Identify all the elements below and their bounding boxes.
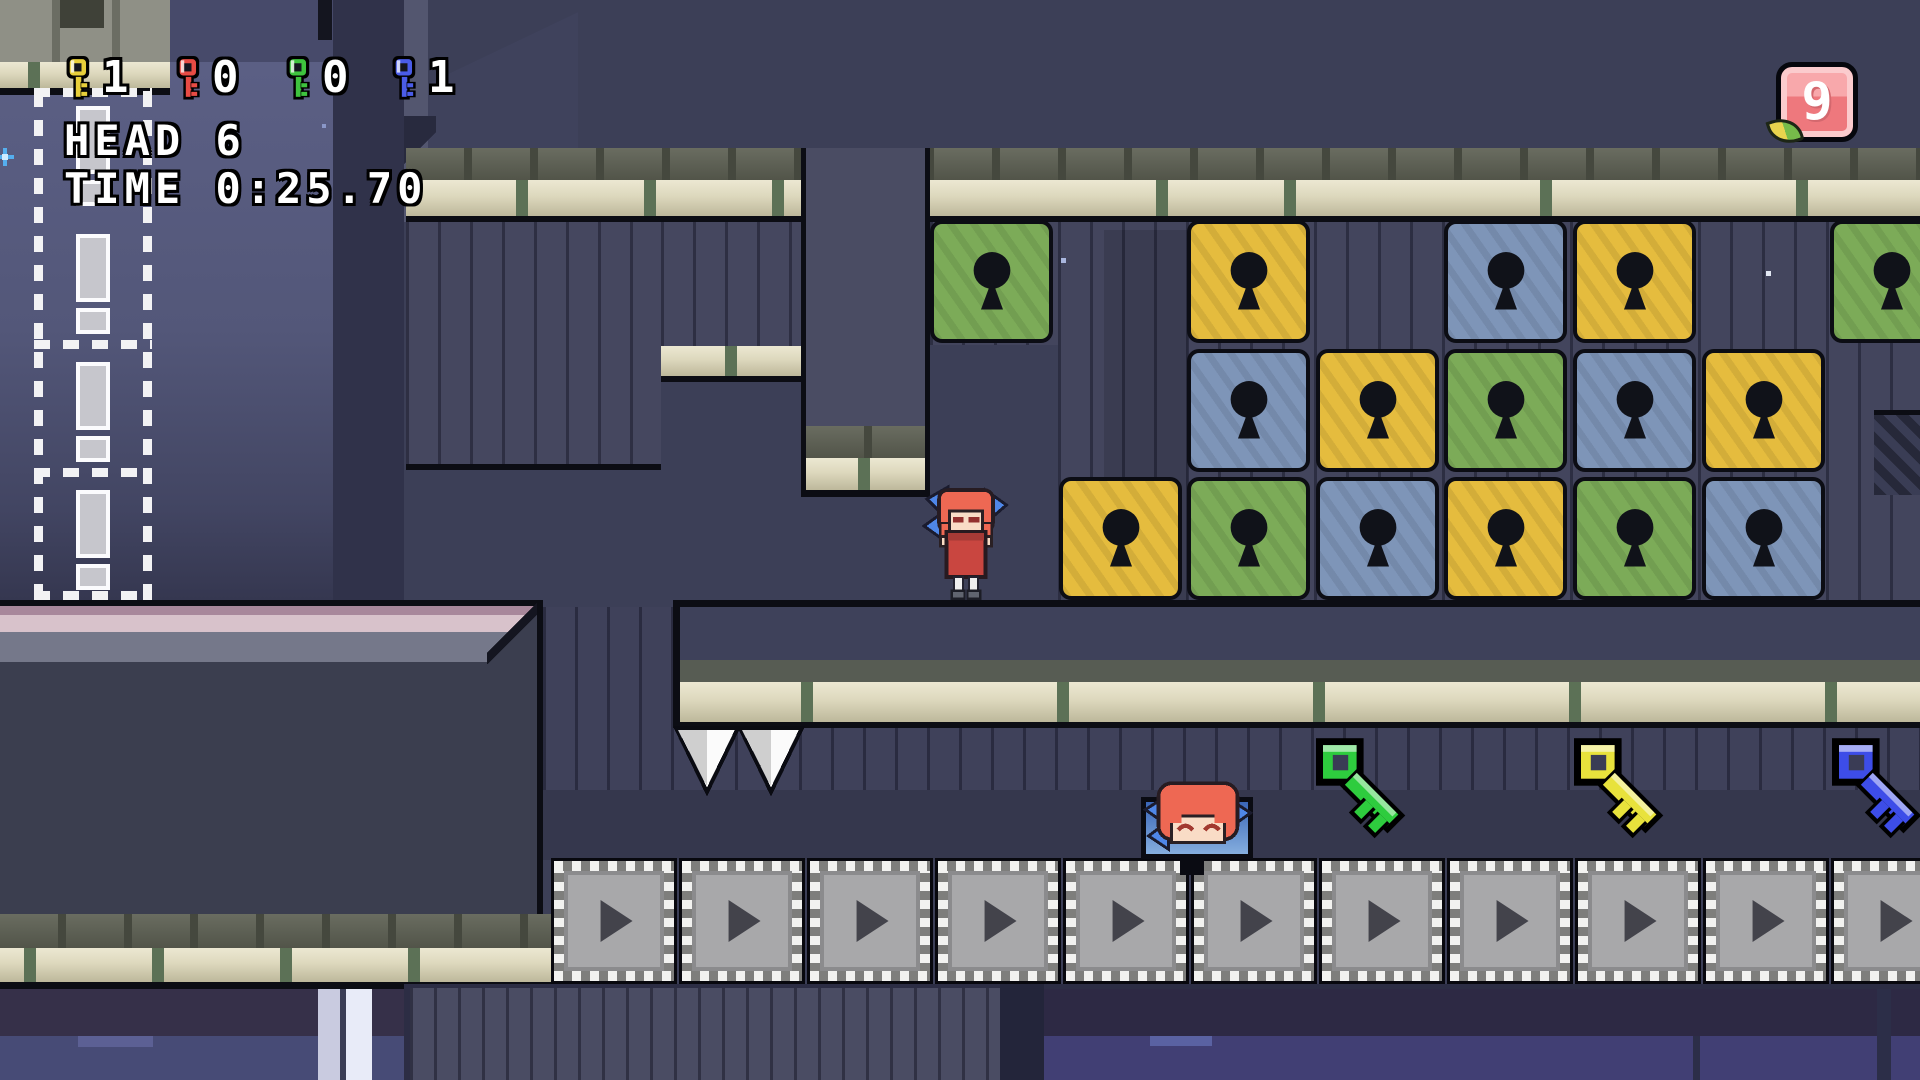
tan-tick <box>152 948 164 982</box>
left-platform-top-line <box>0 600 543 606</box>
conveyor-block <box>1319 858 1445 984</box>
lock-block-yellow <box>1444 477 1567 600</box>
yellow-key-icon <box>1574 738 1686 839</box>
ceiling-brick-notch <box>60 0 104 28</box>
panel-pillar-edge <box>661 376 801 382</box>
tan-tick <box>1796 180 1808 216</box>
keyhole-icon <box>969 249 1015 311</box>
slab-bottom-line <box>673 722 1920 728</box>
slab-left-edge <box>673 600 680 728</box>
keyhole-icon <box>1098 506 1144 568</box>
exclamation-bar <box>76 362 110 430</box>
arrow-right-icon <box>1113 900 1145 942</box>
panel-pillar-wide <box>406 222 661 470</box>
arrow-right-icon <box>729 900 761 942</box>
lock-block-blue <box>1187 349 1310 472</box>
building-roof-detail <box>318 0 332 40</box>
keyhole-icon <box>1612 249 1658 311</box>
left-platform-brick <box>0 914 557 948</box>
exclamation-bar <box>76 234 110 302</box>
lock-block-green <box>1187 477 1310 600</box>
round-number-badge: 9 <box>1776 62 1858 142</box>
arrow-right-icon <box>1497 900 1529 942</box>
conveyor-block <box>679 858 805 984</box>
left-platform-corner-bevel <box>487 600 543 664</box>
conveyor-block <box>807 858 933 984</box>
blue-key-icon <box>1832 738 1920 839</box>
hanging-pillar-edge <box>801 490 930 497</box>
keyhole-icon <box>1483 249 1529 311</box>
blue-key-count: 1 <box>388 54 460 102</box>
keyhole-icon <box>1741 378 1787 440</box>
conveyor-block <box>1063 858 1189 984</box>
lock-block-yellow <box>1316 349 1439 472</box>
tan-tick <box>801 682 813 722</box>
sparkle-icon <box>0 148 14 166</box>
tan-tick <box>408 948 420 982</box>
yellow-key-count: 1 <box>62 54 134 102</box>
keyhole-icon <box>1226 506 1272 568</box>
red-key-count: 0 <box>172 54 244 102</box>
game-canvas[interactable]: 1 0 0 1 HEAD 6 TIME 0:25.70 9 <box>0 0 1920 1080</box>
conveyor-block <box>1831 858 1920 984</box>
arrow-right-icon <box>1753 900 1785 942</box>
slab-body <box>673 600 1920 660</box>
sekibanki-character <box>921 484 1011 601</box>
arrow-right-icon <box>857 900 889 942</box>
light-column <box>318 989 372 1080</box>
hud-time-label: TIME <box>64 164 185 213</box>
panel-pillar-tan-cap <box>661 346 801 376</box>
tan-tick <box>516 180 528 216</box>
key-count: 0 <box>212 54 244 102</box>
keyhole-icon <box>1226 249 1272 311</box>
lock-block-blue <box>1573 349 1696 472</box>
tan-tick <box>772 180 784 216</box>
tan-tick <box>1825 682 1837 722</box>
hud-head-label: HEAD <box>64 116 185 165</box>
tan-tick <box>1540 180 1552 216</box>
keyhole-icon <box>1612 378 1658 440</box>
lock-block-yellow <box>1573 220 1696 343</box>
tan-tick <box>1156 180 1168 216</box>
lock-block-green <box>1573 477 1696 600</box>
top-platform-tan <box>406 180 1920 216</box>
green-key-icon <box>1316 738 1428 839</box>
arrow-right-icon <box>1625 900 1657 942</box>
conveyor-block <box>551 858 677 984</box>
slab-tan <box>673 682 1920 722</box>
keyhole-icon <box>1612 506 1658 568</box>
sky-top-left-band <box>163 0 333 62</box>
keyhole-icon <box>1741 506 1787 568</box>
tan-tick <box>28 62 40 88</box>
tan-tick <box>644 180 656 216</box>
key-icon <box>172 54 206 102</box>
left-platform-top-pink <box>0 606 543 632</box>
tan-tick <box>24 948 36 982</box>
key-icon <box>62 54 96 102</box>
key-count: 1 <box>428 54 460 102</box>
hint-block-divider <box>34 468 152 477</box>
top-platform-brick <box>406 148 1920 180</box>
conveyor-block <box>1703 858 1829 984</box>
moonlit-highlight <box>1150 1036 1212 1046</box>
key-icon <box>388 54 422 102</box>
hud-time-value: 0:25.70 <box>215 164 427 213</box>
arrow-right-icon <box>1369 900 1401 942</box>
lock-block-blue <box>1316 477 1439 600</box>
conveyor-block <box>1575 858 1701 984</box>
star-dot <box>322 124 326 128</box>
arrow-right-icon <box>1241 900 1273 942</box>
moonlit-edge-column <box>1877 989 1891 1080</box>
lock-block-yellow <box>1702 349 1825 472</box>
tan-tick <box>1057 682 1069 722</box>
head-portal-tab <box>1180 857 1204 875</box>
lock-block-blue <box>1702 477 1825 600</box>
spikes <box>674 726 806 796</box>
moonlit-band-dark-right <box>1044 989 1920 1036</box>
star-dot <box>1061 258 1066 263</box>
panel-pillar-short <box>661 222 801 346</box>
keyhole-icon <box>1869 249 1915 311</box>
key-count: 0 <box>322 54 354 102</box>
hint-block-divider <box>34 340 152 349</box>
conveyor-block <box>1191 858 1317 984</box>
keyhole-icon <box>1355 378 1401 440</box>
key-count: 1 <box>102 54 134 102</box>
basement-panel <box>410 988 1000 1080</box>
lock-block-green <box>1830 220 1920 343</box>
tan-tick <box>280 948 292 982</box>
hud-head-value: 6 <box>215 116 245 165</box>
arrow-right-icon <box>1881 900 1913 942</box>
slab-green-course <box>673 660 1920 682</box>
tan-tick <box>1284 180 1296 216</box>
truss-bracket <box>1874 410 1920 495</box>
hanging-pillar-brick <box>806 426 925 458</box>
arrow-right-icon <box>985 900 1017 942</box>
hud-head: HEAD 6 <box>64 118 246 164</box>
conveyor-block <box>1447 858 1573 984</box>
lock-block-green <box>930 220 1053 343</box>
lock-block-green <box>1444 349 1567 472</box>
keyhole-icon <box>1355 506 1401 568</box>
basement-divider <box>1000 984 1044 1080</box>
left-platform-tan <box>0 948 557 982</box>
keyhole-icon <box>1483 506 1529 568</box>
left-platform-top-gray <box>0 632 543 662</box>
sekibanki-head <box>1142 780 1254 859</box>
star-dot <box>1766 271 1771 276</box>
leaf-icon <box>1765 113 1804 150</box>
lock-block-blue <box>1444 220 1567 343</box>
slab-top-line <box>673 600 1920 607</box>
tan-tick <box>1569 682 1581 722</box>
lock-block-yellow <box>1059 477 1182 600</box>
keyhole-icon <box>1226 378 1272 440</box>
hanging-pillar-tan <box>806 458 925 490</box>
round-number: 9 <box>1801 72 1832 132</box>
lock-block-yellow <box>1187 220 1310 343</box>
exclamation-dot <box>76 436 110 462</box>
tan-tick <box>1313 682 1325 722</box>
conveyor-block <box>935 858 1061 984</box>
exclamation-dot <box>76 564 110 590</box>
tan-tick <box>725 346 737 376</box>
tan-tick <box>858 458 870 490</box>
arrow-right-icon <box>601 900 633 942</box>
keyhole-icon <box>1483 378 1529 440</box>
exclamation-bar <box>76 490 110 558</box>
moonlit-seam <box>1693 1036 1700 1080</box>
hud-time: TIME 0:25.70 <box>64 166 427 212</box>
moonlit-highlight <box>78 1036 153 1047</box>
exclamation-dot <box>76 308 110 334</box>
key-icon <box>282 54 316 102</box>
green-key-count: 0 <box>282 54 354 102</box>
